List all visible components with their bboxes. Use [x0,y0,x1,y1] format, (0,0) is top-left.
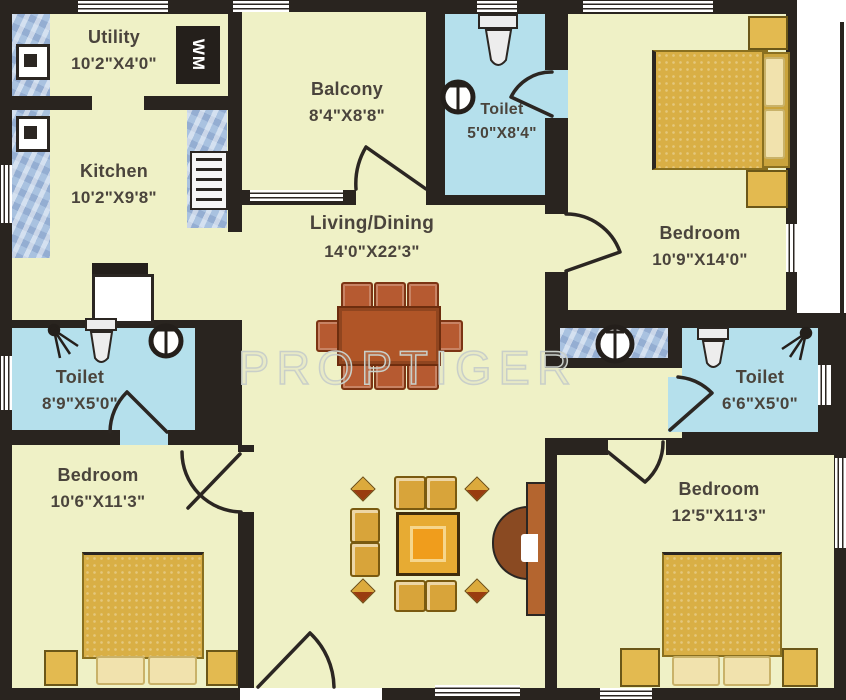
kitchen-sink-hood [92,263,148,274]
pillow-icon [764,57,785,107]
room-dimensions: 10'6"X11'3" [51,489,146,515]
opening-toilettop-bedroom [545,70,568,118]
room-label-living-dining: Living/Dining 14'0"X22'3" [310,210,434,264]
room-dimensions: 14'0"X22'3" [310,239,434,265]
sofa-chair-icon [350,542,380,577]
room-name: Balcony [309,76,385,103]
opening-bedroombl [238,452,254,512]
opening-living-bedroomtr [545,214,568,272]
opening-passage-toiletright [668,377,682,432]
room-label-kitchen: Kitchen 10'2"X9'8" [71,158,157,211]
room-name: Toilet [467,98,537,122]
opening-toiletleft-bedroombl [120,430,168,445]
bedside-table-icon [206,650,238,686]
room-label-bedroom-bottom-left: Bedroom 10'6"X11'3" [51,462,146,515]
floor-plan: WM [0,0,846,700]
coffee-table-icon [396,512,460,576]
window-icon [818,365,831,405]
brand-watermark: PROPTIGER [238,340,578,395]
room-dimensions: 12'5"X11'3" [672,503,767,529]
room-name: Living/Dining [310,210,434,239]
kitchen-sink-icon [92,274,154,324]
window-icon [786,224,797,272]
window-icon [1,356,12,410]
room-name: Toilet [722,364,798,391]
window-icon [583,1,713,12]
bedside-table-icon [44,650,78,686]
pillow-icon [148,656,197,685]
room-dimensions: 8'4"X8'8" [309,103,385,129]
room-dimensions: 5'0"X8'4" [467,122,537,145]
opening-passage-bedroombr [608,440,666,455]
room-label-toilet-left: Toilet 8'9"X5'0" [42,364,118,417]
room-label-balcony: Balcony 8'4"X8'8" [309,76,385,129]
bedside-table-icon [782,648,818,687]
window-icon [600,688,652,699]
room-label-toilet-top: Toilet 5'0"X8'4" [467,98,537,145]
room-name: Kitchen [71,158,157,185]
room-dimensions: 10'9"X14'0" [652,247,748,273]
opening-kitchen-living [228,232,242,320]
washing-machine-icon: WM [176,26,220,84]
room-label-toilet-right: Toilet 6'6"X5'0" [722,364,798,417]
window-icon [435,685,520,696]
sofa-chair-icon [350,508,380,543]
double-bed-icon [652,50,768,170]
room-name: Bedroom [652,220,748,247]
boundary-line [840,22,844,313]
room-name: Toilet [42,364,118,391]
pillow-icon [764,109,785,159]
room-living-dining [242,205,545,688]
sofa-chair-icon [425,476,457,510]
opening-utility-kitchen [92,96,144,110]
pillow-icon [672,656,720,686]
coffee-table-top [410,526,446,562]
window-icon [835,458,846,548]
double-bed-icon [662,552,782,657]
window-icon [233,1,289,12]
room-label-bedroom-bottom-right: Bedroom 12'5"X11'3" [672,476,767,529]
bedside-table-icon [748,16,788,50]
room-dimensions: 10'2"X9'8" [71,185,157,211]
gas-stove-icon [190,151,228,210]
room-label-utility: Utility 10'2"X4'0" [71,24,157,77]
bedside-table-icon [746,170,788,208]
opening-balcony-living [356,190,426,205]
room-name: Bedroom [51,462,146,489]
outside-background [797,0,846,313]
room-name: Utility [71,24,157,51]
pillow-icon [723,656,771,686]
window-icon [250,190,343,201]
utility-fixture-icon [16,116,50,152]
room-dimensions: 8'9"X5'0" [42,391,118,417]
pillow-icon [96,656,145,685]
room-name: Bedroom [672,476,767,503]
double-bed-icon [82,552,204,659]
window-icon [78,1,168,12]
door-mat [521,534,538,562]
bedside-table-icon [620,648,660,687]
sofa-chair-icon [394,580,426,612]
window-icon [477,1,517,12]
room-label-bedroom-top-right: Bedroom 10'9"X14'0" [652,220,748,273]
room-dimensions: 10'2"X4'0" [71,51,157,77]
room-dimensions: 6'6"X5'0" [722,391,798,417]
sofa-chair-icon [394,476,426,510]
utility-fixture-icon [16,44,50,80]
sofa-chair-icon [425,580,457,612]
outside-background [240,686,382,700]
window-icon [1,165,12,223]
